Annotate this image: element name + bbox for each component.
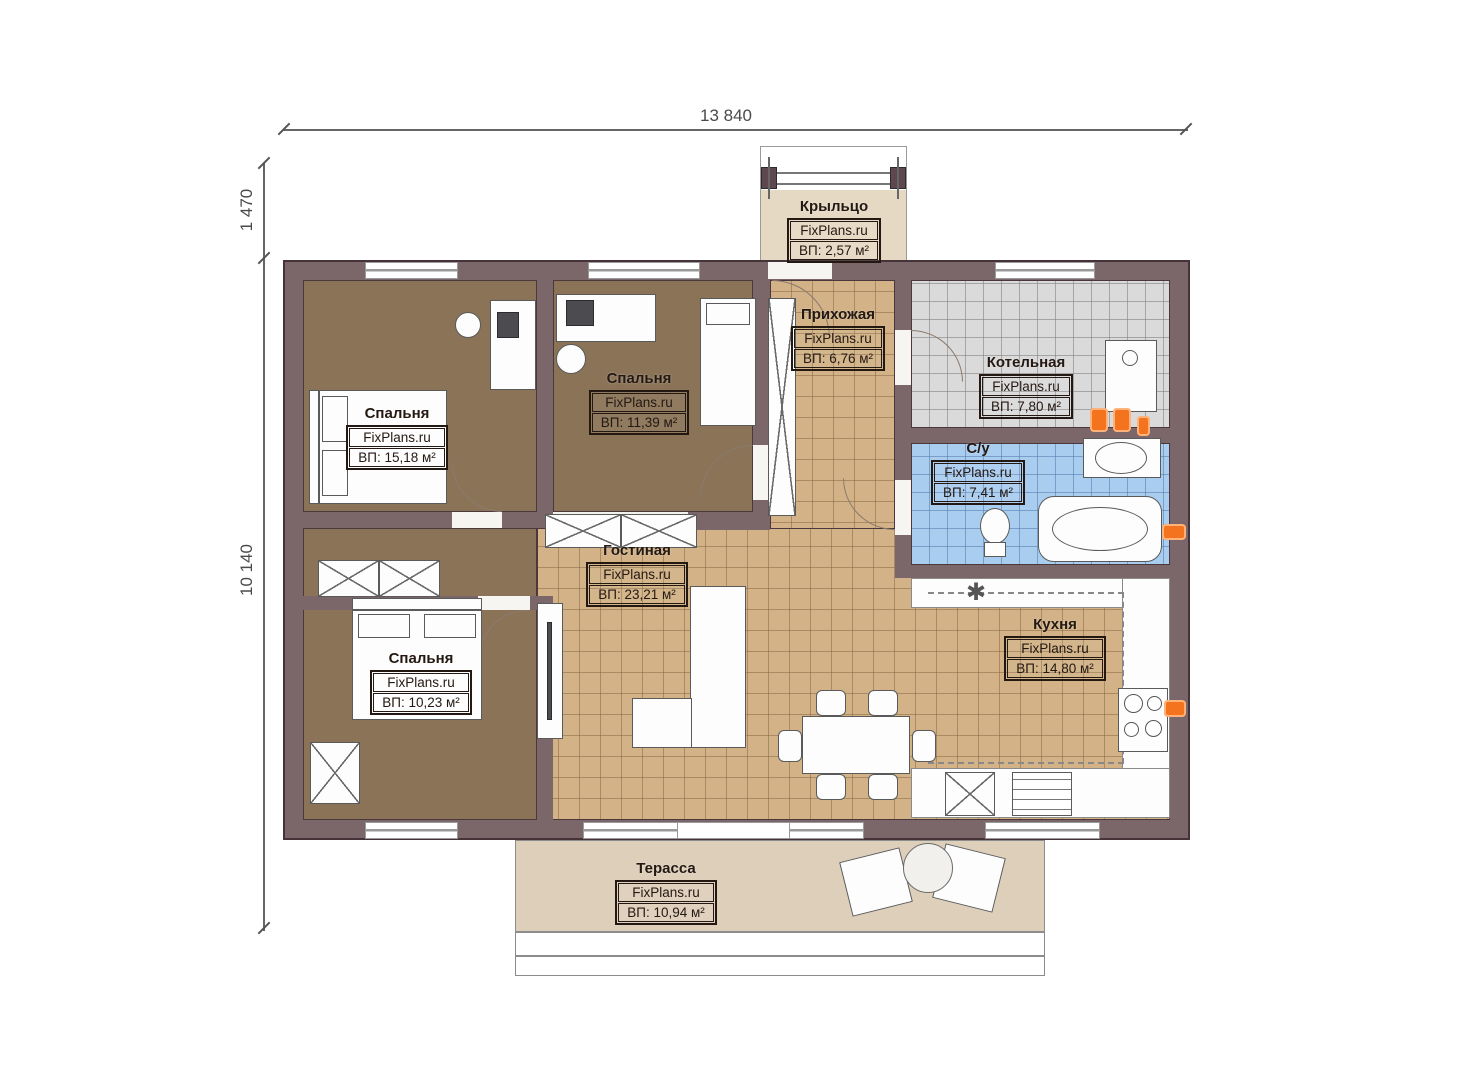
terrace-step <box>515 956 1045 976</box>
dimension-width-label: 13 840 <box>700 106 752 126</box>
bedroom1-door-opening <box>452 512 502 528</box>
brand-watermark: FixPlans.ru <box>982 377 1070 396</box>
room-label-bedroom2: Спальня FixPlans.ru ВП: 11,39 м² <box>578 370 700 435</box>
brand-watermark: FixPlans.ru <box>790 221 878 240</box>
toilet-bowl <box>980 508 1010 544</box>
fridge-snowflake-icon: ✱ <box>966 578 986 607</box>
room-info-box: FixPlans.ru ВП: 2,57 м² <box>787 218 881 263</box>
bathtub-basin <box>1052 507 1148 551</box>
wall-bed1-south <box>303 512 553 528</box>
room-area: ВП: 2,57 м² <box>790 241 878 260</box>
room-name: Прихожая <box>778 306 898 323</box>
terrace-door-opening <box>677 822 790 839</box>
room-label-bedroom1: Спальня FixPlans.ru ВП: 15,18 м² <box>335 405 459 470</box>
room-name: Спальня <box>335 405 459 422</box>
room-info-box: FixPlans.ru ВП: 10,23 м² <box>370 670 472 715</box>
plumbing-fixture-icon <box>1113 408 1131 432</box>
brand-watermark: FixPlans.ru <box>349 428 445 447</box>
wardrobe <box>318 560 379 597</box>
brand-watermark: FixPlans.ru <box>1007 639 1103 658</box>
bedroom1-side-table <box>455 312 481 338</box>
dining-chair <box>816 774 846 800</box>
room-info-box: FixPlans.ru ВП: 15,18 м² <box>346 425 448 470</box>
room-area: ВП: 14,80 м² <box>1007 659 1103 678</box>
wardrobe <box>379 560 440 597</box>
room-label-hallway: Прихожая FixPlans.ru ВП: 6,76 м² <box>778 306 898 371</box>
room-info-box: FixPlans.ru ВП: 7,41 м² <box>931 460 1025 505</box>
porch-railing <box>777 183 890 185</box>
plumbing-fixture-icon <box>1137 416 1150 436</box>
room-info-box: FixPlans.ru ВП: 7,80 м² <box>979 374 1073 419</box>
brand-watermark: FixPlans.ru <box>618 883 714 902</box>
dimension-line-top <box>283 129 1188 131</box>
room-area: ВП: 10,23 м² <box>373 693 469 712</box>
window-bedroom2 <box>588 262 700 279</box>
bed3-pillow <box>424 614 476 638</box>
dining-chair <box>868 774 898 800</box>
floor-plan: 13 840 1 470 10 140 <box>0 0 1473 1080</box>
room-label-bedroom3: Спальня FixPlans.ru ВП: 10,23 м² <box>358 650 484 715</box>
bed3-pillow <box>358 614 410 638</box>
porch-railing <box>777 172 890 174</box>
brand-watermark: FixPlans.ru <box>373 673 469 692</box>
porch-dim-mark <box>897 157 899 199</box>
dining-table <box>802 716 910 774</box>
tv-icon <box>547 622 552 720</box>
room-area: ВП: 7,41 м² <box>934 483 1022 502</box>
room-name: Спальня <box>358 650 484 667</box>
room-name: Спальня <box>578 370 700 387</box>
room-name: С/у <box>918 440 1038 457</box>
bed3-headboard <box>352 598 482 610</box>
gas-fixture-icon <box>1164 700 1186 717</box>
stove-burner <box>1124 694 1143 713</box>
room-info-box: FixPlans.ru ВП: 14,80 м² <box>1004 636 1106 681</box>
room-area: ВП: 11,39 м² <box>592 413 687 432</box>
room-info-box: FixPlans.ru ВП: 10,94 м² <box>615 880 717 925</box>
brand-watermark: FixPlans.ru <box>592 393 687 412</box>
room-area: ВП: 7,80 м² <box>982 397 1070 416</box>
room-info-box: FixPlans.ru ВП: 6,76 м² <box>791 326 885 371</box>
stove-burner <box>1145 720 1162 737</box>
room-area: ВП: 10,94 м² <box>618 903 714 922</box>
sofa-chaise <box>632 698 692 748</box>
room-area: ВП: 15,18 м² <box>349 448 445 467</box>
bedroom1-tv-icon <box>497 312 519 338</box>
computer-monitor-icon <box>566 300 594 326</box>
brand-watermark: FixPlans.ru <box>794 329 882 348</box>
room-name: Котельная <box>966 354 1086 371</box>
room-label-kitchen: Кухня FixPlans.ru ВП: 14,80 м² <box>993 616 1117 681</box>
window-bedroom3 <box>365 822 458 839</box>
bathroom-door-opening <box>895 480 911 535</box>
dining-chair <box>778 730 802 762</box>
kitchen-cabinet <box>945 772 995 816</box>
bed1-headboard <box>309 390 319 504</box>
wall-bathroom-kitchen <box>895 565 1170 578</box>
closet <box>310 742 360 804</box>
dining-chair <box>868 690 898 716</box>
plumbing-fixture-icon <box>1090 408 1108 432</box>
entrance-door-opening <box>768 262 832 279</box>
bed2-pillow <box>706 303 750 325</box>
room-label-porch: Крыльцо FixPlans.ru ВП: 2,57 м² <box>773 198 895 263</box>
boiler-dial <box>1122 350 1138 366</box>
dimension-height-label: 10 140 <box>237 535 257 605</box>
room-label-bathroom: С/у FixPlans.ru ВП: 7,41 м² <box>918 440 1038 505</box>
sink <box>1095 442 1147 474</box>
dimension-porch-depth-label: 1 470 <box>237 175 257 245</box>
wall-bed2-south <box>688 512 770 530</box>
dimension-line-left <box>263 163 265 931</box>
room-name: Кухня <box>993 616 1117 633</box>
room-area: ВП: 23,21 м² <box>589 585 685 604</box>
window-living-right <box>788 822 864 839</box>
room-label-boiler: Котельная FixPlans.ru ВП: 7,80 м² <box>966 354 1086 419</box>
dishwasher <box>1012 772 1072 816</box>
window-bedroom1 <box>365 262 458 279</box>
brand-watermark: FixPlans.ru <box>589 565 685 584</box>
room-area: ВП: 6,76 м² <box>794 349 882 368</box>
sofa-back <box>690 586 746 748</box>
terrace-step <box>515 932 1045 956</box>
room-label-terrace: Терасса FixPlans.ru ВП: 10,94 м² <box>603 860 729 925</box>
porch-dim-mark <box>768 157 770 199</box>
room-name: Терасса <box>603 860 729 877</box>
terrace-table <box>903 843 953 893</box>
towel-radiator-icon <box>1162 524 1186 540</box>
brand-watermark: FixPlans.ru <box>934 463 1022 482</box>
dining-chair <box>816 690 846 716</box>
window-kitchen <box>985 822 1100 839</box>
room-name: Крыльцо <box>773 198 895 215</box>
stove-burner <box>1147 696 1162 711</box>
stove-burner <box>1124 722 1139 737</box>
room-info-box: FixPlans.ru ВП: 23,21 м² <box>586 562 688 607</box>
room-info-box: FixPlans.ru ВП: 11,39 м² <box>589 390 690 435</box>
toilet-tank <box>984 542 1006 557</box>
room-name: Гостиная <box>575 542 699 559</box>
wall-bed1-bed2 <box>537 280 553 512</box>
window-boiler <box>995 262 1095 279</box>
bedroom3-door-opening <box>478 596 530 610</box>
room-label-living: Гостиная FixPlans.ru ВП: 23,21 м² <box>575 542 699 607</box>
window-living-left <box>583 822 679 839</box>
